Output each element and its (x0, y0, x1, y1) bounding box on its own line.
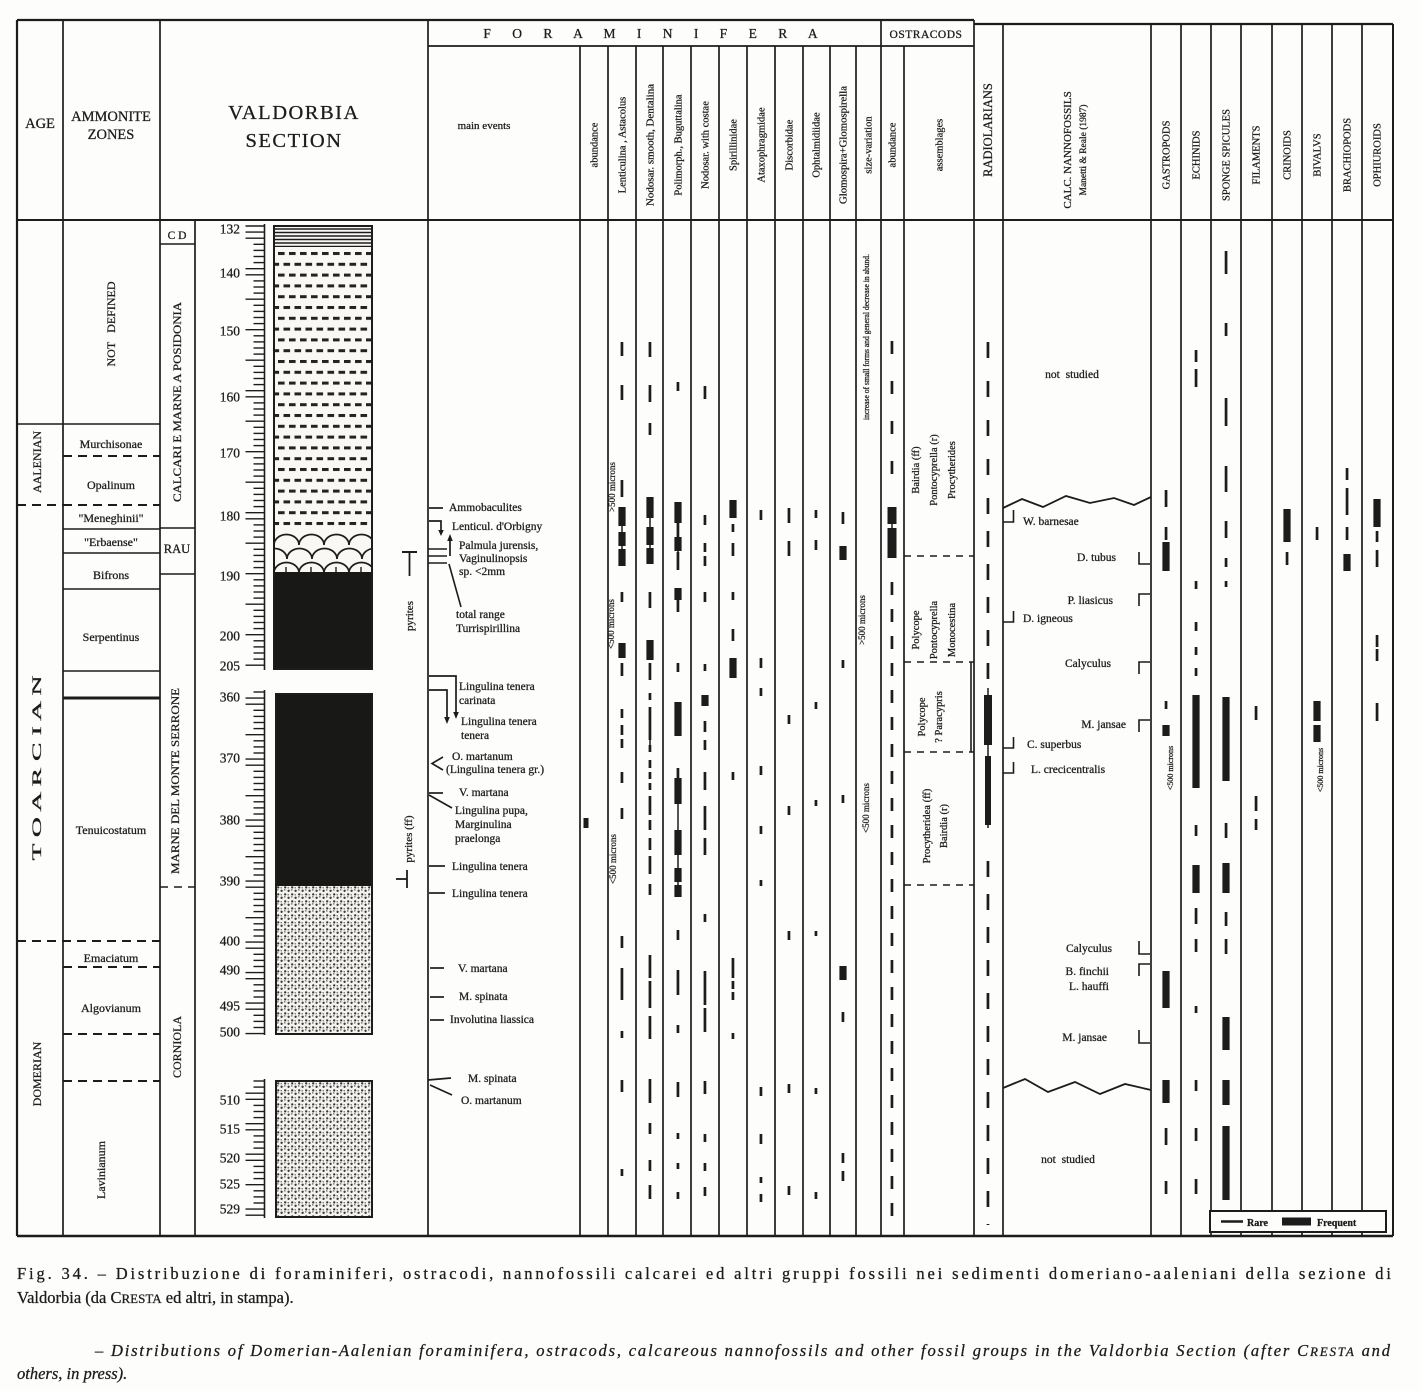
svg-text:pyrites: pyrites (404, 601, 416, 631)
svg-text:? Paracypris: ? Paracypris (934, 691, 945, 743)
svg-text:Ataxophragmidae: Ataxophragmidae (757, 107, 768, 183)
svg-text:Calyculus: Calyculus (1066, 943, 1113, 955)
svg-text:T O A R C I A N: T O A R C I A N (30, 676, 44, 861)
svg-text:Polycope: Polycope (911, 610, 922, 649)
svg-text:<500 microns: <500 microns (608, 834, 618, 884)
svg-text:L. hauffi: L. hauffi (1069, 981, 1109, 993)
svg-text:Serpentinus: Serpentinus (83, 630, 140, 644)
svg-text:Bairdia (ff): Bairdia (ff) (911, 446, 922, 494)
svg-text:total range: total range (456, 609, 505, 621)
svg-text:400: 400 (220, 934, 241, 949)
svg-text:205: 205 (220, 659, 241, 674)
svg-text:495: 495 (220, 999, 241, 1014)
svg-text:390: 390 (220, 874, 241, 889)
svg-text:M. jansae: M. jansae (1062, 1032, 1107, 1044)
svg-text:180: 180 (220, 509, 241, 524)
svg-text:sp. <2mm: sp. <2mm (459, 566, 505, 578)
svg-text:carinata: carinata (459, 695, 495, 707)
svg-text:SECTION: SECTION (245, 130, 342, 152)
svg-text:510: 510 (220, 1093, 241, 1108)
svg-text:Lenticul. d'Orbigny: Lenticul. d'Orbigny (452, 521, 542, 533)
svg-text:L. crecicentralis: L. crecicentralis (1031, 764, 1106, 776)
svg-text:Frequent: Frequent (1317, 1218, 1357, 1229)
svg-text:Lingulina tenera: Lingulina tenera (452, 888, 528, 900)
svg-text:Valdorbia (da CRESTA ed altri,: Valdorbia (da CRESTA ed altri, in stampa… (17, 1288, 294, 1307)
svg-text:D. igneous: D. igneous (1023, 613, 1073, 625)
svg-text:490: 490 (220, 963, 241, 978)
svg-text:Procytheridea (ff): Procytheridea (ff) (922, 788, 933, 863)
svg-text:VALDORBIA: VALDORBIA (228, 102, 360, 124)
svg-text:increase of small forms and ge: increase of small forms and general decr… (861, 254, 871, 420)
svg-text:Manetti & Reale (1987): Manetti & Reale (1987) (1078, 104, 1089, 195)
svg-text:Pontocyprella: Pontocyprella (929, 601, 940, 660)
svg-text:M. spinata: M. spinata (459, 991, 508, 1003)
svg-text:529: 529 (220, 1202, 241, 1217)
svg-text:O. martanum: O. martanum (452, 751, 513, 763)
svg-text:OSTRACODS: OSTRACODS (890, 29, 963, 41)
svg-text:D. tubus: D. tubus (1077, 552, 1117, 564)
svg-text:Rare: Rare (1247, 1218, 1268, 1229)
svg-text:GASTROPODS: GASTROPODS (1162, 120, 1173, 189)
svg-text:M. spinata: M. spinata (468, 1073, 517, 1085)
svg-text:Procytherides: Procytherides (947, 441, 958, 499)
svg-text:<500 microns: <500 microns (861, 783, 871, 833)
svg-text:V. martana: V. martana (459, 787, 509, 799)
svg-text:M. jansae: M. jansae (1081, 719, 1126, 731)
svg-text:Lavinianum: Lavinianum (94, 1140, 108, 1199)
svg-text:140: 140 (220, 266, 241, 281)
svg-text:not studied: not studied (1041, 1154, 1095, 1166)
svg-text:<500 microns: <500 microns (1316, 748, 1325, 792)
svg-text:C D: C D (168, 230, 187, 242)
svg-text:380: 380 (220, 813, 241, 828)
svg-text:Algovianum: Algovianum (81, 1001, 142, 1015)
svg-text:Turrispirillina: Turrispirillina (456, 623, 520, 635)
svg-text:Lenticulina , Astacolus: Lenticulina , Astacolus (618, 97, 629, 194)
svg-text:Emaciatum: Emaciatum (84, 951, 139, 965)
svg-text:150: 150 (220, 324, 241, 339)
svg-text:Palmula jurensis,: Palmula jurensis, (459, 540, 538, 552)
svg-text:P. liasicus: P. liasicus (1068, 595, 1114, 607)
svg-text:Lingulina tenera: Lingulina tenera (461, 716, 537, 728)
svg-text:AMMONITE: AMMONITE (71, 109, 151, 125)
svg-text:Involutina liassica: Involutina liassica (450, 1014, 534, 1026)
svg-text:O. martanum: O. martanum (461, 1095, 522, 1107)
svg-text:size-variation: size-variation (864, 116, 875, 174)
svg-text:190: 190 (220, 569, 241, 584)
svg-text:AALENIAN: AALENIAN (30, 431, 44, 493)
svg-text:Ammobaculites: Ammobaculites (449, 502, 522, 514)
svg-text:main events: main events (458, 120, 511, 132)
svg-text:OPHIUROIDS: OPHIUROIDS (1373, 123, 1384, 187)
svg-text:pyrites (ff): pyrites (ff) (403, 815, 415, 862)
svg-text:Glomospira+Glomospirella: Glomospira+Glomospirella (839, 86, 850, 204)
svg-text:370: 370 (220, 751, 241, 766)
svg-text:160: 160 (220, 390, 241, 405)
svg-text:– Distributions of Domerian-Aa: – Distributions of Domerian-Aalenian for… (94, 1341, 1391, 1360)
svg-text:525: 525 (220, 1177, 241, 1192)
svg-text:520: 520 (220, 1151, 241, 1166)
svg-text:CALC. NANNOFOSSILS: CALC. NANNOFOSSILS (1062, 91, 1074, 208)
svg-text:200: 200 (220, 629, 241, 644)
svg-text:Discorbidae: Discorbidae (785, 119, 796, 170)
svg-text:tenera: tenera (461, 730, 489, 742)
svg-text:assemblages: assemblages (935, 119, 946, 172)
svg-text:Lingulina pupa,: Lingulina pupa, (455, 805, 528, 817)
svg-text:"Erbaense": "Erbaense" (84, 535, 138, 549)
svg-text:BIVALVS: BIVALVS (1313, 133, 1324, 176)
svg-text:MARNE DEL MONTE SERRONE: MARNE DEL MONTE SERRONE (170, 688, 182, 874)
svg-text:others, in press).: others, in press). (17, 1364, 127, 1383)
svg-text:360: 360 (220, 690, 241, 705)
svg-text:F O R A M I N I F E R A: F O R A M I N I F E R A (483, 26, 826, 41)
svg-text:ZONES: ZONES (88, 127, 135, 143)
svg-text:>500 microns: >500 microns (857, 595, 867, 645)
svg-text:RAU: RAU (164, 542, 190, 556)
svg-text:Vaginulinopsis: Vaginulinopsis (459, 553, 528, 565)
svg-text:V. martana: V. martana (458, 963, 508, 975)
svg-text:Calyculus: Calyculus (1065, 658, 1112, 670)
svg-text:(Lingulina tenera gr.): (Lingulina tenera gr.) (446, 764, 544, 776)
svg-text:Spirillinidae: Spirillinidae (729, 119, 740, 171)
svg-text:500: 500 (220, 1025, 241, 1040)
svg-text:Pontocyprella (r): Pontocyprella (r) (929, 434, 940, 506)
svg-text:132: 132 (220, 222, 240, 237)
svg-text:praelonga: praelonga (455, 833, 500, 845)
svg-text:Polimorph., Buguttalina: Polimorph., Buguttalina (674, 94, 685, 196)
svg-text:NOT DEFINED: NOT DEFINED (104, 281, 118, 366)
svg-text:>500 microns: >500 microns (607, 462, 617, 512)
svg-text:Nodosar. with costae: Nodosar. with costae (701, 101, 712, 189)
svg-text:CALCARI E MARNE A POSIDONIA: CALCARI E MARNE A POSIDONIA (172, 301, 184, 502)
svg-text:<500 microns: <500 microns (606, 599, 616, 649)
svg-text:"Meneghinii": "Meneghinii" (78, 511, 143, 525)
svg-text:B. finchii: B. finchii (1066, 966, 1109, 978)
svg-text:abundance: abundance (888, 122, 899, 167)
svg-text:FILAMENTS: FILAMENTS (1252, 125, 1263, 184)
svg-text:515: 515 (220, 1122, 241, 1137)
svg-text:Nodosar. smooth, Dentalina: Nodosar. smooth, Dentalina (646, 84, 657, 206)
svg-text:CRINOIDS: CRINOIDS (1283, 130, 1294, 180)
svg-text:Lingulina tenera: Lingulina tenera (452, 861, 528, 873)
svg-text:Tenuicostatum: Tenuicostatum (76, 823, 147, 837)
svg-text:not studied: not studied (1045, 369, 1099, 381)
svg-text:Lingulina tenera: Lingulina tenera (459, 681, 535, 693)
svg-text:<500 microns: <500 microns (1166, 746, 1175, 790)
svg-text:RADIOLARIANS: RADIOLARIANS (981, 83, 995, 177)
svg-text:ECHINIDS: ECHINIDS (1192, 130, 1203, 179)
svg-text:BRACHIOPODS: BRACHIOPODS (1343, 118, 1354, 192)
svg-text:SPONGE SPICULES: SPONGE SPICULES (1222, 109, 1233, 201)
svg-text:DOMERIAN: DOMERIAN (30, 1041, 44, 1106)
svg-text:170: 170 (220, 446, 241, 461)
svg-text:Marginulina: Marginulina (455, 819, 512, 831)
svg-text:Bairdia (r): Bairdia (r) (939, 803, 950, 848)
svg-text:CORNIOLA: CORNIOLA (170, 1016, 184, 1078)
svg-text:Murchisonae: Murchisonae (80, 437, 143, 451)
svg-text:abundance: abundance (590, 122, 601, 167)
svg-text:Ophtalmidiidae: Ophtalmidiidae (812, 112, 823, 178)
svg-text:Polycope: Polycope (917, 697, 928, 736)
svg-text:Monocestina: Monocestina (947, 603, 958, 658)
svg-text:Bifrons: Bifrons (93, 568, 129, 582)
svg-text:Opalinum: Opalinum (87, 478, 136, 492)
svg-text:W. barnesae: W. barnesae (1023, 516, 1079, 528)
svg-text:C. superbus: C. superbus (1027, 739, 1082, 751)
svg-text:AGE: AGE (25, 116, 55, 132)
